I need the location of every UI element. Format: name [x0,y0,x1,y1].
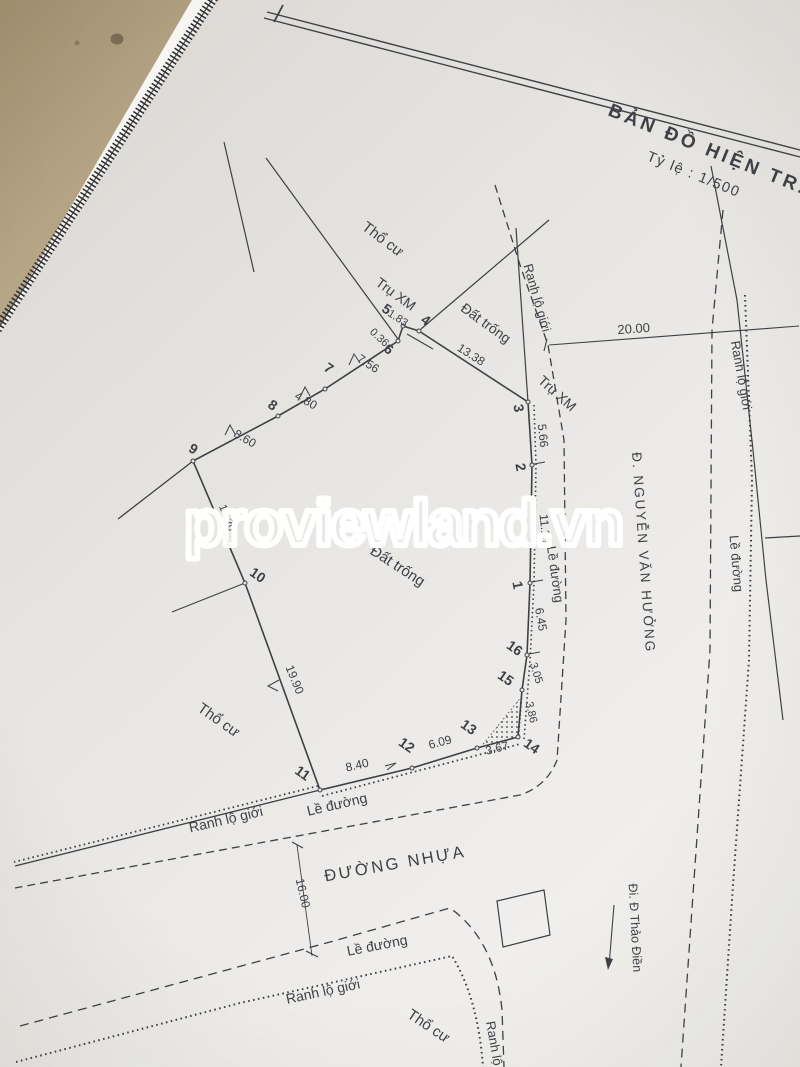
table-speck [75,41,80,46]
photo-of-survey-map: BẢN ĐỒ HIỆN TRẠNG Tỷ lệ : 1/500 Thổ cư T… [0,0,800,1067]
watermark: proviewland.vn [184,487,622,559]
survey-map-sheet: BẢN ĐỒ HIỆN TRẠNG Tỷ lệ : 1/500 Thổ cư T… [0,0,800,1067]
dim-3-2: 5.66 [535,423,551,448]
dim-top-20: 20.00 [617,320,651,337]
table-stain [111,34,124,45]
watermark-text: proviewland.vn [184,487,622,559]
